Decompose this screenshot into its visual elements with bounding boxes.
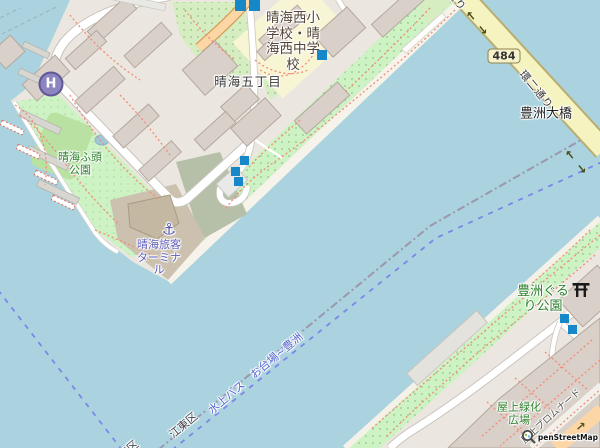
poi-marker[interactable] — [235, 0, 246, 11]
attribution-text: penStreetMap — [538, 433, 598, 442]
osm-attribution[interactable]: penStreetMap — [521, 429, 598, 445]
heliport-icon: H — [39, 72, 64, 97]
poi-marker[interactable] — [568, 325, 577, 334]
route-ref-badge: 484 — [488, 49, 521, 64]
poi-marker[interactable] — [317, 50, 327, 60]
poi-marker[interactable] — [234, 177, 243, 186]
map-tiles — [0, 0, 600, 448]
poi-marker[interactable] — [240, 156, 249, 165]
poi-marker[interactable] — [249, 0, 260, 11]
poi-marker[interactable] — [231, 167, 240, 176]
poi-marker[interactable] — [560, 314, 569, 323]
osm-logo-icon — [521, 429, 537, 445]
anchor-icon: ⚓ — [162, 220, 176, 239]
map-canvas[interactable]: 晴海西小学校・晴海西中学校 晴海五丁目 晴海ふ頭公園 ⚓ 晴海旅客ターミナル H… — [0, 0, 600, 448]
